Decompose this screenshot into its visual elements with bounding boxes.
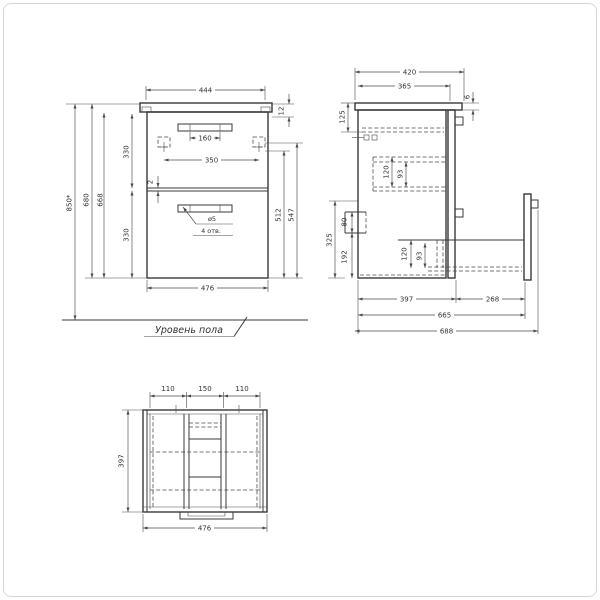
dim-height-overall: 850* xyxy=(66,194,74,211)
dim-top-view-depth: 397 xyxy=(118,454,126,467)
front-view: 444 160 350 12 850* 680 668 330 xyxy=(66,86,304,320)
back-panel xyxy=(448,110,455,278)
dim-547: 547 xyxy=(288,208,296,221)
dim-zone: 325 xyxy=(326,233,334,246)
wall-rail xyxy=(524,194,531,280)
dim-depth-body: 365 xyxy=(398,83,411,91)
dim-665: 665 xyxy=(438,312,451,320)
dim-gap: 2 xyxy=(147,180,155,184)
dim-slide-upper-inner: 93 xyxy=(397,170,405,179)
dim-hole-spacing: 350 xyxy=(205,157,218,165)
dim-section-left: 110 xyxy=(161,385,174,393)
handle-top-view xyxy=(180,512,233,519)
technical-drawing-sheet: 444 160 350 12 850* 680 668 330 xyxy=(0,0,600,600)
hanger-bracket-top xyxy=(455,117,463,125)
dim-top-view-width: 476 xyxy=(198,525,212,533)
dim-front-bottom-width: 476 xyxy=(201,285,215,293)
dim-slide-lower-h: 120 xyxy=(401,247,409,260)
dim-front-top-width: 444 xyxy=(199,87,213,95)
dim-688: 688 xyxy=(440,328,453,336)
dim-slide-lower-inner: 93 xyxy=(416,252,424,261)
dim-section-right: 110 xyxy=(235,385,248,393)
dim-cutout: 80 xyxy=(341,218,349,227)
hanger-bracket-mid xyxy=(455,209,463,217)
dim-depth-overall: 420 xyxy=(403,69,416,77)
dim-height-668: 668 xyxy=(97,193,105,206)
dim-body-depth: 397 xyxy=(400,296,413,304)
hole-count-note: 4 отв. xyxy=(201,227,221,235)
dim-from-bottom: 192 xyxy=(341,250,349,263)
floor-label: Уровень пола xyxy=(155,325,223,336)
dim-top-inset: 125 xyxy=(339,110,347,123)
dim-512: 512 xyxy=(275,208,283,221)
dim-drawer-bottom-height: 330 xyxy=(123,228,131,241)
cabinet-drawing: 444 160 350 12 850* 680 668 330 xyxy=(0,0,600,600)
dim-back-gap: 6 xyxy=(464,94,472,99)
dim-slide-upper-h: 120 xyxy=(383,165,391,178)
hole-diameter-note: ø5 xyxy=(208,215,216,223)
top-view: 110 150 110 397 476 xyxy=(118,385,268,533)
dim-height-680: 680 xyxy=(83,193,91,206)
dim-rail-offset: 268 xyxy=(486,296,499,304)
countertop-side xyxy=(355,103,462,110)
cabinet-body-top xyxy=(143,410,267,512)
dim-handle-length: 160 xyxy=(198,135,211,143)
hole-note: ø5 4 отв. xyxy=(183,207,233,236)
drawer-handle-top xyxy=(178,124,232,131)
dim-section-center: 150 xyxy=(198,385,211,393)
floor-level: Уровень пола xyxy=(62,317,308,337)
side-view: 125 120 93 120 93 xyxy=(326,68,539,336)
dim-top-offset: 12 xyxy=(278,107,286,116)
countertop-front xyxy=(140,103,272,112)
wall-rail-hook xyxy=(531,200,538,208)
dim-drawer-top-height: 330 xyxy=(123,145,131,158)
